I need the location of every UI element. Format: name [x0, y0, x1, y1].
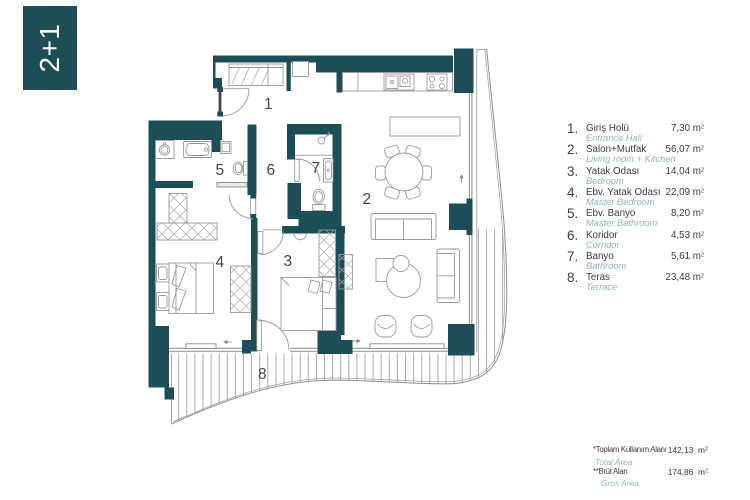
svg-text:4: 4 [216, 254, 225, 271]
svg-text:2: 2 [363, 191, 372, 208]
svg-text:1: 1 [264, 96, 273, 113]
svg-text:7: 7 [312, 160, 321, 177]
svg-text:8: 8 [258, 366, 267, 383]
svg-text:3: 3 [284, 253, 293, 270]
svg-text:5: 5 [216, 162, 225, 179]
svg-text:6: 6 [267, 162, 276, 179]
